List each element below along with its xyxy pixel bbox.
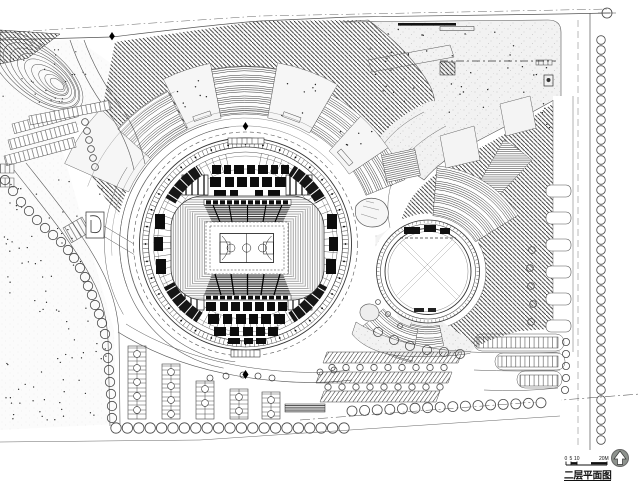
svg-text:0: 0 [565, 456, 568, 462]
svg-text:20M: 20M [599, 456, 609, 462]
svg-text:二层平面图: 二层平面图 [564, 470, 612, 482]
svg-text:5: 5 [570, 456, 573, 462]
svg-text:10: 10 [574, 456, 580, 462]
